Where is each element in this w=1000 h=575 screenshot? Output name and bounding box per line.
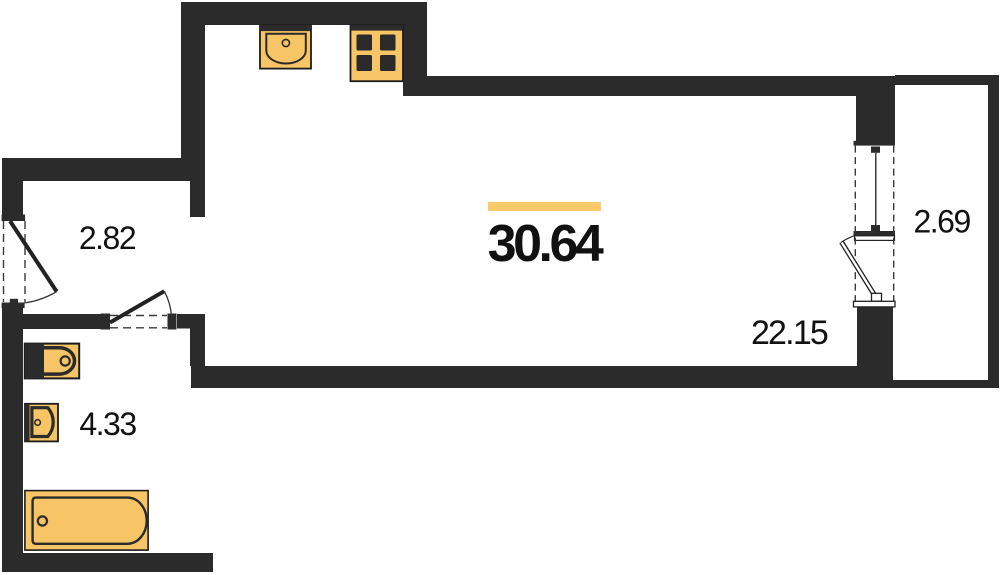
svg-text:30.64: 30.64 xyxy=(488,215,604,273)
svg-text:2.69: 2.69 xyxy=(913,204,970,240)
svg-text:4.33: 4.33 xyxy=(79,406,136,442)
svg-text:22.15: 22.15 xyxy=(751,314,828,352)
svg-text:2.82: 2.82 xyxy=(79,220,136,256)
